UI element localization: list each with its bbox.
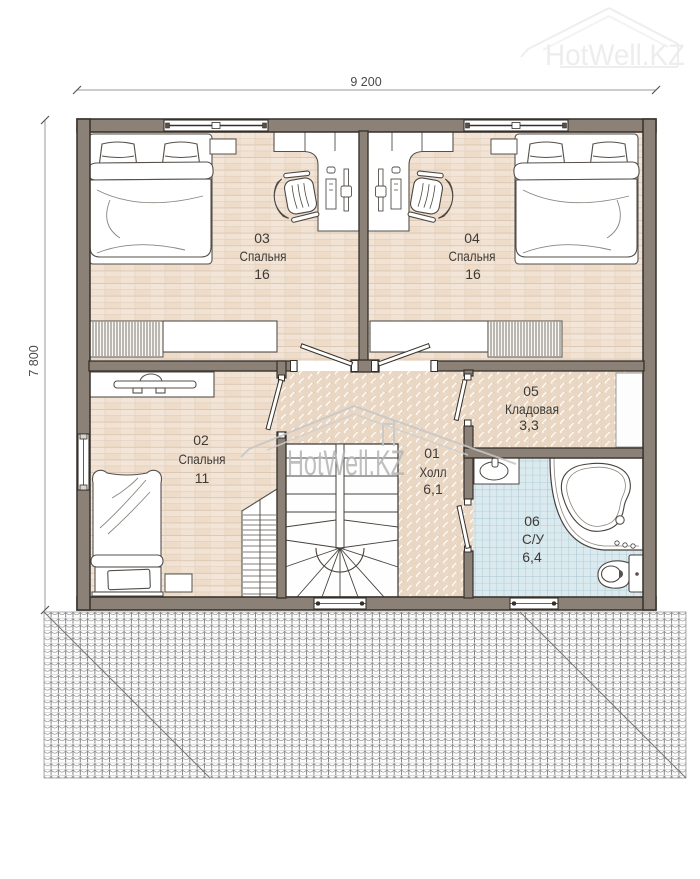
svg-text:04: 04 [464, 230, 480, 246]
svg-text:HotWell.KZ: HotWell.KZ [545, 39, 685, 72]
svg-text:3,3: 3,3 [519, 417, 539, 433]
svg-text:Спальня: Спальня [179, 451, 226, 467]
svg-text:6,1: 6,1 [423, 481, 443, 497]
svg-text:06: 06 [524, 513, 540, 529]
svg-text:Кладовая: Кладовая [505, 401, 559, 417]
svg-text:05: 05 [523, 383, 539, 399]
svg-text:02: 02 [193, 432, 209, 448]
svg-text:7 800: 7 800 [27, 345, 41, 376]
svg-text:01: 01 [424, 445, 440, 461]
svg-text:Спальня: Спальня [449, 248, 496, 264]
svg-text:16: 16 [465, 266, 481, 282]
svg-text:HotWell.KZ: HotWell.KZ [287, 444, 405, 483]
svg-text:9 200: 9 200 [350, 75, 381, 89]
svg-text:6,4: 6,4 [522, 549, 542, 565]
svg-text:16: 16 [254, 266, 270, 282]
svg-text:03: 03 [254, 230, 270, 246]
svg-text:С/У: С/У [522, 531, 544, 547]
svg-text:Холл: Холл [420, 464, 447, 480]
svg-text:Спальня: Спальня [240, 248, 287, 264]
svg-text:11: 11 [195, 470, 210, 486]
